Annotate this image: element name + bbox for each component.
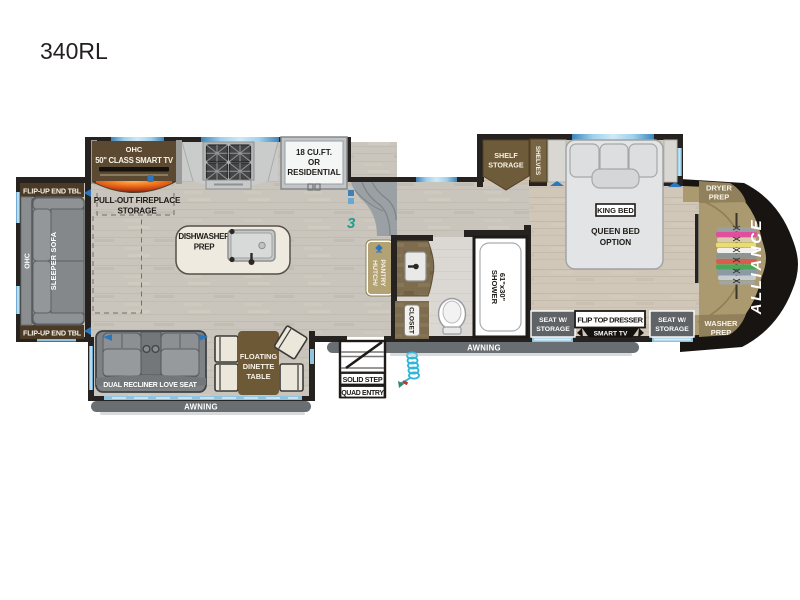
svg-text:TABLE: TABLE — [246, 372, 270, 381]
svg-text:STORAGE: STORAGE — [488, 161, 524, 170]
svg-text:FLIP-UP END TBL: FLIP-UP END TBL — [23, 329, 82, 338]
svg-text:340RL: 340RL — [40, 38, 108, 64]
svg-text:OPTION: OPTION — [600, 238, 631, 247]
svg-text:SEAT W/: SEAT W/ — [539, 317, 567, 324]
svg-text:SHELVES: SHELVES — [534, 146, 541, 176]
svg-text:AWNING: AWNING — [184, 403, 218, 412]
svg-text:PULL-OUT FIREPLACE: PULL-OUT FIREPLACE — [94, 196, 181, 205]
svg-text:PREP: PREP — [194, 243, 216, 252]
svg-text:DINETTE: DINETTE — [243, 362, 275, 371]
svg-text:50" CLASS SMART TV: 50" CLASS SMART TV — [95, 156, 174, 165]
svg-text:PREP: PREP — [709, 193, 729, 202]
svg-text:CLOSET: CLOSET — [408, 307, 415, 334]
svg-text:STORAGE: STORAGE — [536, 326, 570, 333]
svg-text:QUEEN BED: QUEEN BED — [591, 227, 640, 236]
svg-text:RESIDENTIAL: RESIDENTIAL — [287, 168, 340, 177]
svg-text:PREP: PREP — [711, 328, 731, 337]
svg-text:18 CU.FT.: 18 CU.FT. — [296, 148, 332, 157]
svg-text:SOLID STEP: SOLID STEP — [343, 375, 383, 384]
svg-text:FLIP TOP DRESSER: FLIP TOP DRESSER — [577, 316, 643, 325]
svg-text:OHC: OHC — [25, 253, 32, 269]
svg-text:OR: OR — [308, 158, 320, 167]
svg-text:SHELF: SHELF — [494, 151, 518, 160]
svg-text:STORAGE: STORAGE — [118, 207, 158, 216]
svg-text:SHOWER: SHOWER — [490, 270, 499, 305]
svg-text:PANTRY: PANTRY — [379, 259, 386, 287]
svg-text:DUAL RECLINER LOVE SEAT: DUAL RECLINER LOVE SEAT — [103, 382, 197, 389]
svg-text:QUAD ENTRY: QUAD ENTRY — [341, 390, 384, 397]
svg-text:KING BED: KING BED — [597, 206, 634, 215]
svg-text:OHC: OHC — [126, 145, 143, 154]
svg-text:DRYER: DRYER — [706, 184, 733, 193]
svg-text:SLEEPER SOFA: SLEEPER SOFA — [49, 231, 58, 290]
svg-text:DISHWASHER: DISHWASHER — [178, 232, 230, 241]
svg-text:FLOATING: FLOATING — [240, 352, 277, 361]
svg-text:FLIP-UP END TBL: FLIP-UP END TBL — [23, 187, 82, 196]
svg-text:ALLIANCE: ALLIANCE — [748, 218, 765, 316]
svg-text:SEAT W/: SEAT W/ — [658, 317, 686, 324]
svg-text:3: 3 — [347, 215, 356, 232]
svg-text:HUTCH/: HUTCH/ — [371, 260, 378, 286]
svg-text:WASHER: WASHER — [705, 319, 739, 328]
svg-text:SMART TV: SMART TV — [594, 331, 628, 338]
svg-text:AWNING: AWNING — [467, 344, 501, 353]
svg-text:STORAGE: STORAGE — [655, 326, 689, 333]
